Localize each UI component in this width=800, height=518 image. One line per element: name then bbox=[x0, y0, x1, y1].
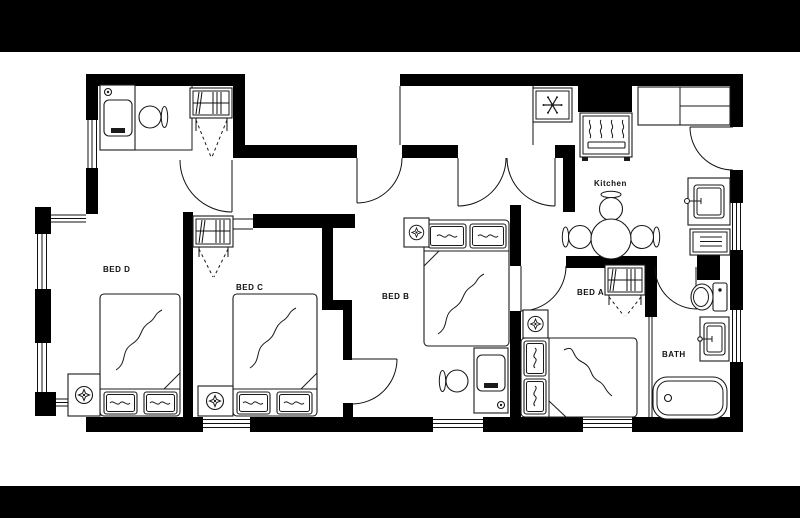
window-bay-upper bbox=[38, 234, 47, 289]
room-label-bed-b: BED B bbox=[382, 292, 409, 301]
window-bottom-1 bbox=[203, 420, 250, 428]
bath-door bbox=[655, 267, 697, 309]
kitchen-side-door bbox=[690, 127, 733, 170]
window-bottom-3 bbox=[583, 420, 632, 428]
bath-sink-icon bbox=[698, 317, 729, 361]
dining-chair-icon bbox=[631, 226, 660, 249]
room-bed-b: BED B bbox=[382, 218, 509, 413]
toilet-icon bbox=[691, 283, 727, 311]
top-banner bbox=[0, 0, 800, 52]
room-bed-d: BED D bbox=[68, 85, 232, 416]
hall-double-door bbox=[458, 158, 555, 206]
pillow bbox=[524, 341, 546, 376]
window-bottom-2 bbox=[433, 420, 483, 428]
pillow bbox=[237, 392, 270, 414]
dishwasher-icon bbox=[690, 229, 730, 255]
room-label-bed-a: BED A bbox=[577, 288, 604, 297]
fridge-icon bbox=[533, 88, 572, 122]
bed-a-door bbox=[521, 266, 566, 311]
room-bath: BATH bbox=[653, 283, 729, 419]
dining-chair-icon bbox=[600, 191, 623, 220]
dining-chair-icon bbox=[562, 226, 591, 249]
lamp-icon bbox=[528, 316, 543, 331]
pillow bbox=[428, 224, 466, 248]
kitchen-counter bbox=[638, 87, 730, 125]
room-kitchen: Kitchen bbox=[533, 87, 730, 259]
room-label-kitchen: Kitchen bbox=[594, 179, 627, 188]
room-label-bed-c: BED C bbox=[236, 283, 263, 292]
window-step-upper bbox=[51, 215, 86, 222]
desk-icon bbox=[100, 85, 135, 150]
bed-d-door bbox=[180, 160, 232, 212]
room-bed-a: BED A bbox=[521, 265, 645, 417]
window-right-2 bbox=[733, 310, 741, 362]
desk-chair-icon bbox=[139, 106, 168, 128]
bed-icon bbox=[233, 294, 317, 416]
window-bay-lower bbox=[38, 343, 47, 392]
wardrobe-icon bbox=[193, 216, 233, 277]
window-left-upper bbox=[88, 120, 97, 168]
bottom-banner bbox=[0, 486, 800, 518]
bathtub-icon bbox=[653, 377, 727, 419]
entrance-door bbox=[357, 158, 402, 203]
lamp-icon bbox=[207, 393, 224, 410]
bed-b-door bbox=[352, 359, 397, 404]
wardrobe-icon bbox=[190, 88, 232, 157]
lamp-icon bbox=[76, 387, 93, 404]
room-label-bath: BATH bbox=[662, 350, 686, 359]
bed-icon bbox=[424, 220, 509, 346]
pillow bbox=[524, 379, 546, 414]
room-label-bed-d: BED D bbox=[103, 265, 130, 274]
floor-plan-page: BED D bbox=[0, 0, 800, 518]
dining-table-icon bbox=[591, 219, 631, 259]
pillow bbox=[277, 392, 312, 414]
window-right-1 bbox=[733, 203, 741, 250]
desk-chair-icon bbox=[439, 370, 468, 392]
pillow bbox=[470, 224, 506, 248]
wardrobe-icon bbox=[605, 265, 645, 316]
lamp-icon bbox=[409, 225, 423, 239]
bed-icon bbox=[521, 338, 637, 417]
bed-c-opening-threshold bbox=[233, 219, 253, 229]
kitchen-sink-icon bbox=[685, 178, 731, 225]
dining-set bbox=[562, 191, 659, 259]
bed-icon bbox=[100, 294, 180, 416]
room-bed-c: BED C bbox=[193, 216, 317, 416]
pillow bbox=[104, 392, 137, 414]
floor-plan-svg: BED D bbox=[0, 0, 800, 518]
desk-icon bbox=[474, 348, 508, 413]
stove-icon bbox=[580, 113, 632, 161]
pillow bbox=[144, 392, 177, 414]
